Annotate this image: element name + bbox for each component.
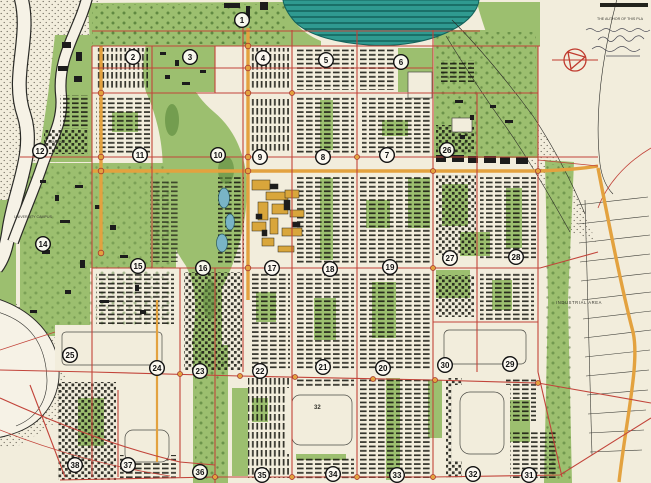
sector-marker: 38 — [68, 458, 83, 473]
map-canvas: UNIVERSITY CAMPUS INDUSTRIAL AREA PUMPIN… — [0, 0, 651, 483]
sector-number: 5 — [324, 56, 329, 65]
sector-number: 16 — [199, 264, 208, 273]
sector-marker: 34 — [326, 467, 341, 482]
sector-number: 3 — [188, 53, 193, 62]
sector-marker: 3 — [183, 50, 198, 65]
sector-number: 14 — [39, 240, 48, 249]
sector-number: 23 — [196, 367, 205, 376]
sector-number: 21 — [319, 363, 328, 372]
sector-number: 25 — [66, 351, 75, 360]
sector-marker: 22 — [253, 364, 268, 379]
city-master-plan-map: UNIVERSITY CAMPUS INDUSTRIAL AREA PUMPIN… — [0, 0, 651, 483]
sector-marker: 33 — [390, 468, 405, 483]
sector-marker: 18 — [323, 262, 338, 277]
sector-marker: 11 — [133, 148, 148, 163]
sector-number: 30 — [441, 361, 450, 370]
sector-number: 33 — [393, 471, 402, 480]
sector-marker: 14 — [36, 237, 51, 252]
sector-number: 19 — [386, 263, 395, 272]
university-campus-label: UNIVERSITY CAMPUS — [14, 215, 52, 219]
sector-marker: 24 — [150, 361, 165, 376]
sector-marker: 35 — [255, 468, 270, 483]
sector-number: 9 — [258, 153, 263, 162]
sector-marker: 1 — [235, 13, 250, 28]
sector-marker: 23 — [193, 364, 208, 379]
sector-number: 12 — [36, 147, 45, 156]
sector-marker: 28 — [509, 250, 524, 265]
sector-number: 24 — [153, 364, 162, 373]
sector-marker: 12 — [33, 144, 48, 159]
sector-marker: 30 — [438, 358, 453, 373]
sector-number: 2 — [131, 53, 136, 62]
pumping-label: PUMPING — [48, 140, 65, 144]
sector-marker: 8 — [316, 150, 331, 165]
sector-marker: 17 — [265, 261, 280, 276]
sector-number: 28 — [512, 253, 521, 262]
sector-number: 6 — [399, 58, 404, 67]
sector-marker: 19 — [383, 260, 398, 275]
title-bar — [600, 3, 648, 7]
sector-marker: 7 — [380, 148, 395, 163]
industrial-area-label: INDUSTRIAL AREA — [556, 300, 602, 305]
sector-number: 36 — [196, 468, 205, 477]
sector-number: 17 — [268, 264, 277, 273]
sector-number: 18 — [326, 265, 335, 274]
sector-number: 22 — [256, 367, 265, 376]
sector-number: 34 — [329, 470, 338, 479]
sector-number: 32 — [469, 470, 478, 479]
sector-number: 1 — [240, 16, 245, 25]
sector-marker: 2 — [126, 50, 141, 65]
sector-marker: 9 — [253, 150, 268, 165]
sector-number: 26 — [443, 146, 452, 155]
sector-marker: 16 — [196, 261, 211, 276]
sector-number: 15 — [134, 262, 143, 271]
sector-marker: 21 — [316, 360, 331, 375]
sector-marker: 29 — [503, 357, 518, 372]
sector-marker: 27 — [443, 251, 458, 266]
block-32-label: 32 — [314, 405, 321, 411]
sector-marker: 26 — [440, 143, 455, 158]
sector-marker: 10 — [211, 148, 226, 163]
sector-number: 37 — [124, 461, 133, 470]
sector-marker: 5 — [319, 53, 334, 68]
sector-number: 4 — [261, 54, 266, 63]
sector-marker: 15 — [131, 259, 146, 274]
sector-number: 8 — [321, 153, 326, 162]
sector-marker: 6 — [394, 55, 409, 70]
sector-number: 10 — [214, 151, 223, 160]
sector-marker: 36 — [193, 465, 208, 480]
sector-number: 35 — [258, 471, 267, 480]
sector-marker: 25 — [63, 348, 78, 363]
sector-marker: 4 — [256, 51, 271, 66]
sector-number: 27 — [446, 254, 455, 263]
sector-number: 38 — [71, 461, 80, 470]
sector-marker: 20 — [376, 361, 391, 376]
sector-number: 11 — [136, 151, 145, 160]
sector-marker: 32 — [466, 467, 481, 482]
sector-number: 29 — [506, 360, 515, 369]
sector-marker: 37 — [121, 458, 136, 473]
sector-number: 7 — [385, 151, 390, 160]
sector-number: 31 — [525, 471, 534, 480]
author-note-text: THE AUTHOR OF THIS PLA — [597, 17, 644, 21]
sector-number: 20 — [379, 364, 388, 373]
sector-marker: 31 — [522, 468, 537, 483]
